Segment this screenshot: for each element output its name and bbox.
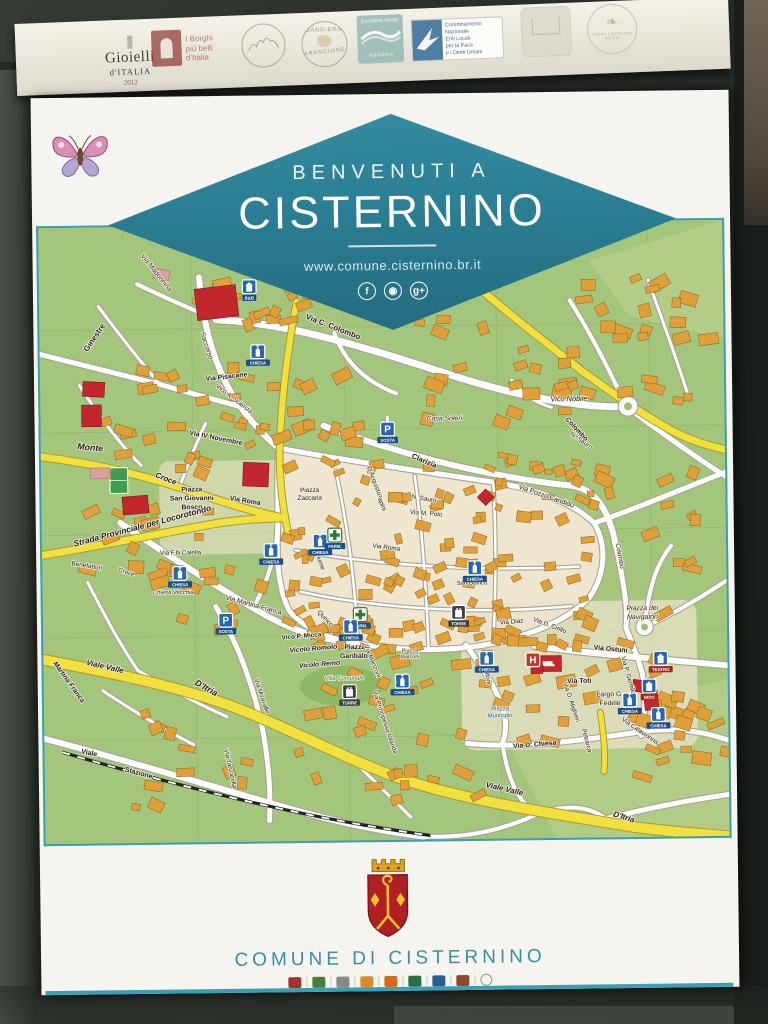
street-label: Chiesa Vecchia <box>153 590 194 597</box>
footer-logo-green-flag <box>408 975 421 986</box>
street-label: Largo G. <box>597 691 624 698</box>
footer-logo-stamp <box>480 974 492 986</box>
dove-icon <box>412 20 444 61</box>
coat-of-arms <box>349 851 426 946</box>
gioielli-emblem <box>127 36 132 49</box>
map-marker-hospital: H <box>526 653 540 667</box>
street-label: Via F.lli Calella <box>160 549 202 557</box>
svg-text:CHIESA: CHIESA <box>312 550 329 555</box>
map-marker-parking: PSOSTA <box>215 613 236 634</box>
welcome-text: BENVENUTI A <box>292 160 491 185</box>
photo-of-town-map-sign: Gioielli d'ITALIA 2012 I Borghi più bell… <box>0 0 768 1024</box>
logo-separator <box>450 975 451 985</box>
street-label: USL <box>543 661 555 667</box>
svg-text:TEATRO: TEATRO <box>652 667 670 672</box>
street-label: Piazza <box>491 706 509 712</box>
street-label: Villa Comunale <box>325 676 365 682</box>
welcome-map-poster: BENVENUTI A CISTERNINO www.comune.cister… <box>31 90 740 995</box>
logo-separator <box>378 976 379 986</box>
svg-text:CHIESA: CHIESA <box>250 360 267 365</box>
street-label: Via Toti <box>567 678 591 685</box>
crown-icon <box>372 859 405 871</box>
svg-text:NIDO: NIDO <box>644 695 655 700</box>
svg-text:CHIESA: CHIESA <box>467 577 484 582</box>
badge-bandiera-verde: Bandiera Verde Agricoltura <box>356 14 404 64</box>
footer-logo-trulli <box>312 976 325 987</box>
footer-logo-arancione <box>360 976 373 987</box>
street-label: Municipio <box>488 713 514 719</box>
badge-bandiera-arancione: BANDIERA ARANCIONE <box>301 20 349 68</box>
olive-branch-icon: ❧ <box>588 12 637 31</box>
map-marker-building: NIDO <box>640 679 658 700</box>
street-label: San Giovanni <box>170 495 214 503</box>
logo-separator <box>474 975 475 985</box>
svg-text:H: H <box>529 655 536 666</box>
badge-terra-libera-stamp: ❧ TERRA LIBERA DAI VELENI <box>586 3 638 55</box>
instagram-icon: ◉ <box>384 282 402 300</box>
social-icons: f ◉ g+ <box>358 281 428 300</box>
street-label: Piazza <box>344 644 365 651</box>
wave-icon <box>357 23 404 48</box>
svg-text:SOSTA: SOSTA <box>380 438 396 443</box>
street-label: Vico Nobile <box>550 394 587 403</box>
skyline-doodle-icon <box>242 24 286 68</box>
svg-text:CHIESA: CHIESA <box>650 723 667 728</box>
background-wall <box>744 0 768 225</box>
footer-logo-pace <box>432 975 445 986</box>
banner-underline <box>348 244 436 247</box>
ground-pavement <box>394 1006 734 1024</box>
pace-text: Coordinamento Nazionale Enti Locali per … <box>442 18 485 60</box>
street-label: Piazza dei <box>626 605 658 612</box>
facebook-icon: f <box>358 282 376 300</box>
svg-text:SOSTA: SOSTA <box>219 629 235 634</box>
svg-text:CHIESA: CHIESA <box>394 690 411 695</box>
footer-logo-ring <box>384 975 397 986</box>
badge-enti-locali-pace: Coordinamento Nazionale Enti Locali per … <box>411 16 505 62</box>
town-name: CISTERNINO <box>238 184 546 240</box>
svg-text:CHIESA: CHIESA <box>172 582 189 587</box>
borghi-arch-icon <box>151 30 182 67</box>
google-plus-icon: g+ <box>410 281 428 299</box>
gioielli-line2: d'ITALIA <box>100 65 160 77</box>
map-marker-castle: TORRE <box>448 605 469 626</box>
map-marker-castle: TORRE <box>339 685 360 706</box>
svg-text:TORRE: TORRE <box>342 700 357 705</box>
logo-separator <box>306 977 307 987</box>
butterfly-sticker <box>47 123 114 182</box>
street-label: Zaccaria <box>297 495 322 502</box>
municipality-url: www.comune.cisternino.br.it <box>304 257 481 274</box>
logo-separator <box>354 976 355 986</box>
map-marker-building: B&B <box>242 280 256 301</box>
municipality-name: COMUNE DI CISTERNINO <box>41 944 739 975</box>
map-marker-parking: PSOSTA <box>377 422 398 443</box>
arancione-map-icon <box>317 35 331 48</box>
badge-skyline-stamp <box>241 23 287 69</box>
logo-separator <box>402 976 403 986</box>
borghi-text: I Borghi più belli d'Italia <box>185 28 214 65</box>
svg-text:CHIESA: CHIESA <box>479 667 496 672</box>
svg-text:TORRE: TORRE <box>451 621 466 626</box>
logo-separator <box>426 976 427 986</box>
footer-logo-statue <box>336 976 349 987</box>
svg-text:B&B: B&B <box>245 295 254 300</box>
street-label: Piazza <box>181 486 202 493</box>
badge-faded-square <box>520 6 572 58</box>
street-label: Navigatori <box>627 614 658 621</box>
svg-text:CHIESA: CHIESA <box>263 559 280 564</box>
street-label: Piazza <box>300 487 320 494</box>
gioielli-year: 2012 <box>101 77 161 87</box>
svg-text:CHIESA: CHIESA <box>622 709 639 714</box>
map-marker-pharmacy: FARM. <box>324 528 345 549</box>
svg-text:FARM.: FARM. <box>328 544 342 549</box>
badge-borghi-piu-belli: I Borghi più belli d'Italia <box>151 28 214 66</box>
footer-logo-terra <box>456 975 469 986</box>
sign-frame-left <box>0 70 36 1024</box>
logo-separator <box>330 977 331 987</box>
street-label: Marconi <box>400 654 419 660</box>
street-label: Casa Soleri <box>427 415 463 422</box>
svg-text:CHIESA: CHIESA <box>343 635 360 640</box>
svg-text:P: P <box>384 424 391 435</box>
footer-logo-borghi <box>288 977 301 988</box>
svg-text:P: P <box>222 615 229 626</box>
street-label: Fedele <box>600 700 621 707</box>
